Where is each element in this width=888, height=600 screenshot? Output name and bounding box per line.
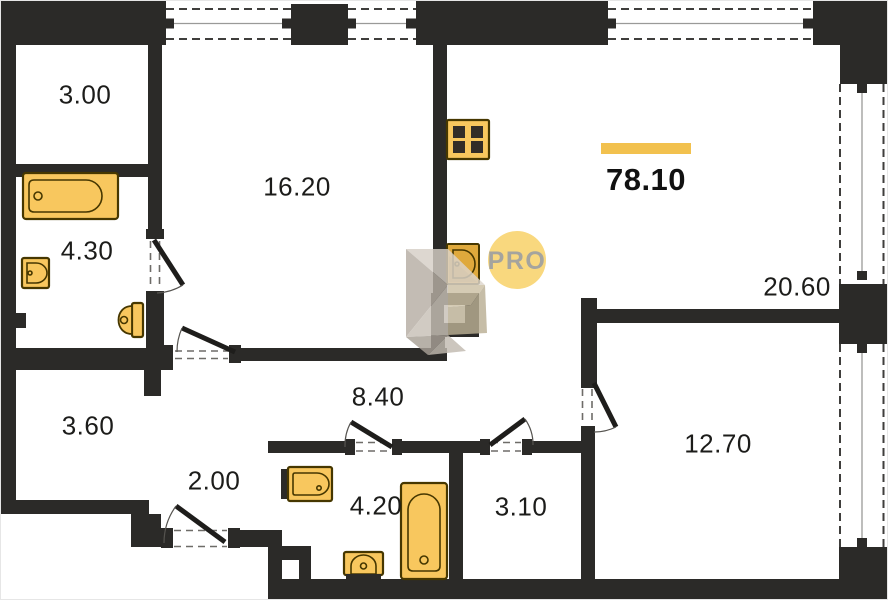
area-label-storage-room: 3.60 <box>62 411 115 442</box>
toilet-small-icon <box>344 552 383 580</box>
area-label-bathroom-small: 4.20 <box>350 491 403 522</box>
bathtub-icon <box>23 173 118 219</box>
area-label-top-left-room: 3.00 <box>59 80 112 111</box>
area-label-kitchen-living-room: 20.60 <box>763 272 831 303</box>
area-label-living-room: 16.20 <box>263 172 331 203</box>
area-label-entry: 2.00 <box>188 466 241 497</box>
total-area-underline <box>601 143 691 154</box>
total-area-label: 78.10 <box>606 162 686 198</box>
floor-plan: PRO 78.10 3.00 16.20 4.30 20.60 3.60 8.4… <box>0 0 888 600</box>
area-label-hallway: 8.40 <box>352 382 405 413</box>
area-label-wardrobe: 3.10 <box>495 492 548 523</box>
bathtub-small-icon <box>401 483 447 579</box>
watermark-pro-text: PRO <box>488 247 547 275</box>
sink-icon <box>22 258 49 288</box>
watermark-pro-badge: PRO <box>488 231 547 289</box>
stove-icon <box>447 120 489 159</box>
area-label-bathroom-main: 4.30 <box>61 236 114 267</box>
sink-small-icon <box>288 467 332 501</box>
floorplan-canvas: PRO <box>1 1 888 600</box>
toilet-icon <box>119 303 144 337</box>
area-label-bedroom: 12.70 <box>684 429 752 460</box>
